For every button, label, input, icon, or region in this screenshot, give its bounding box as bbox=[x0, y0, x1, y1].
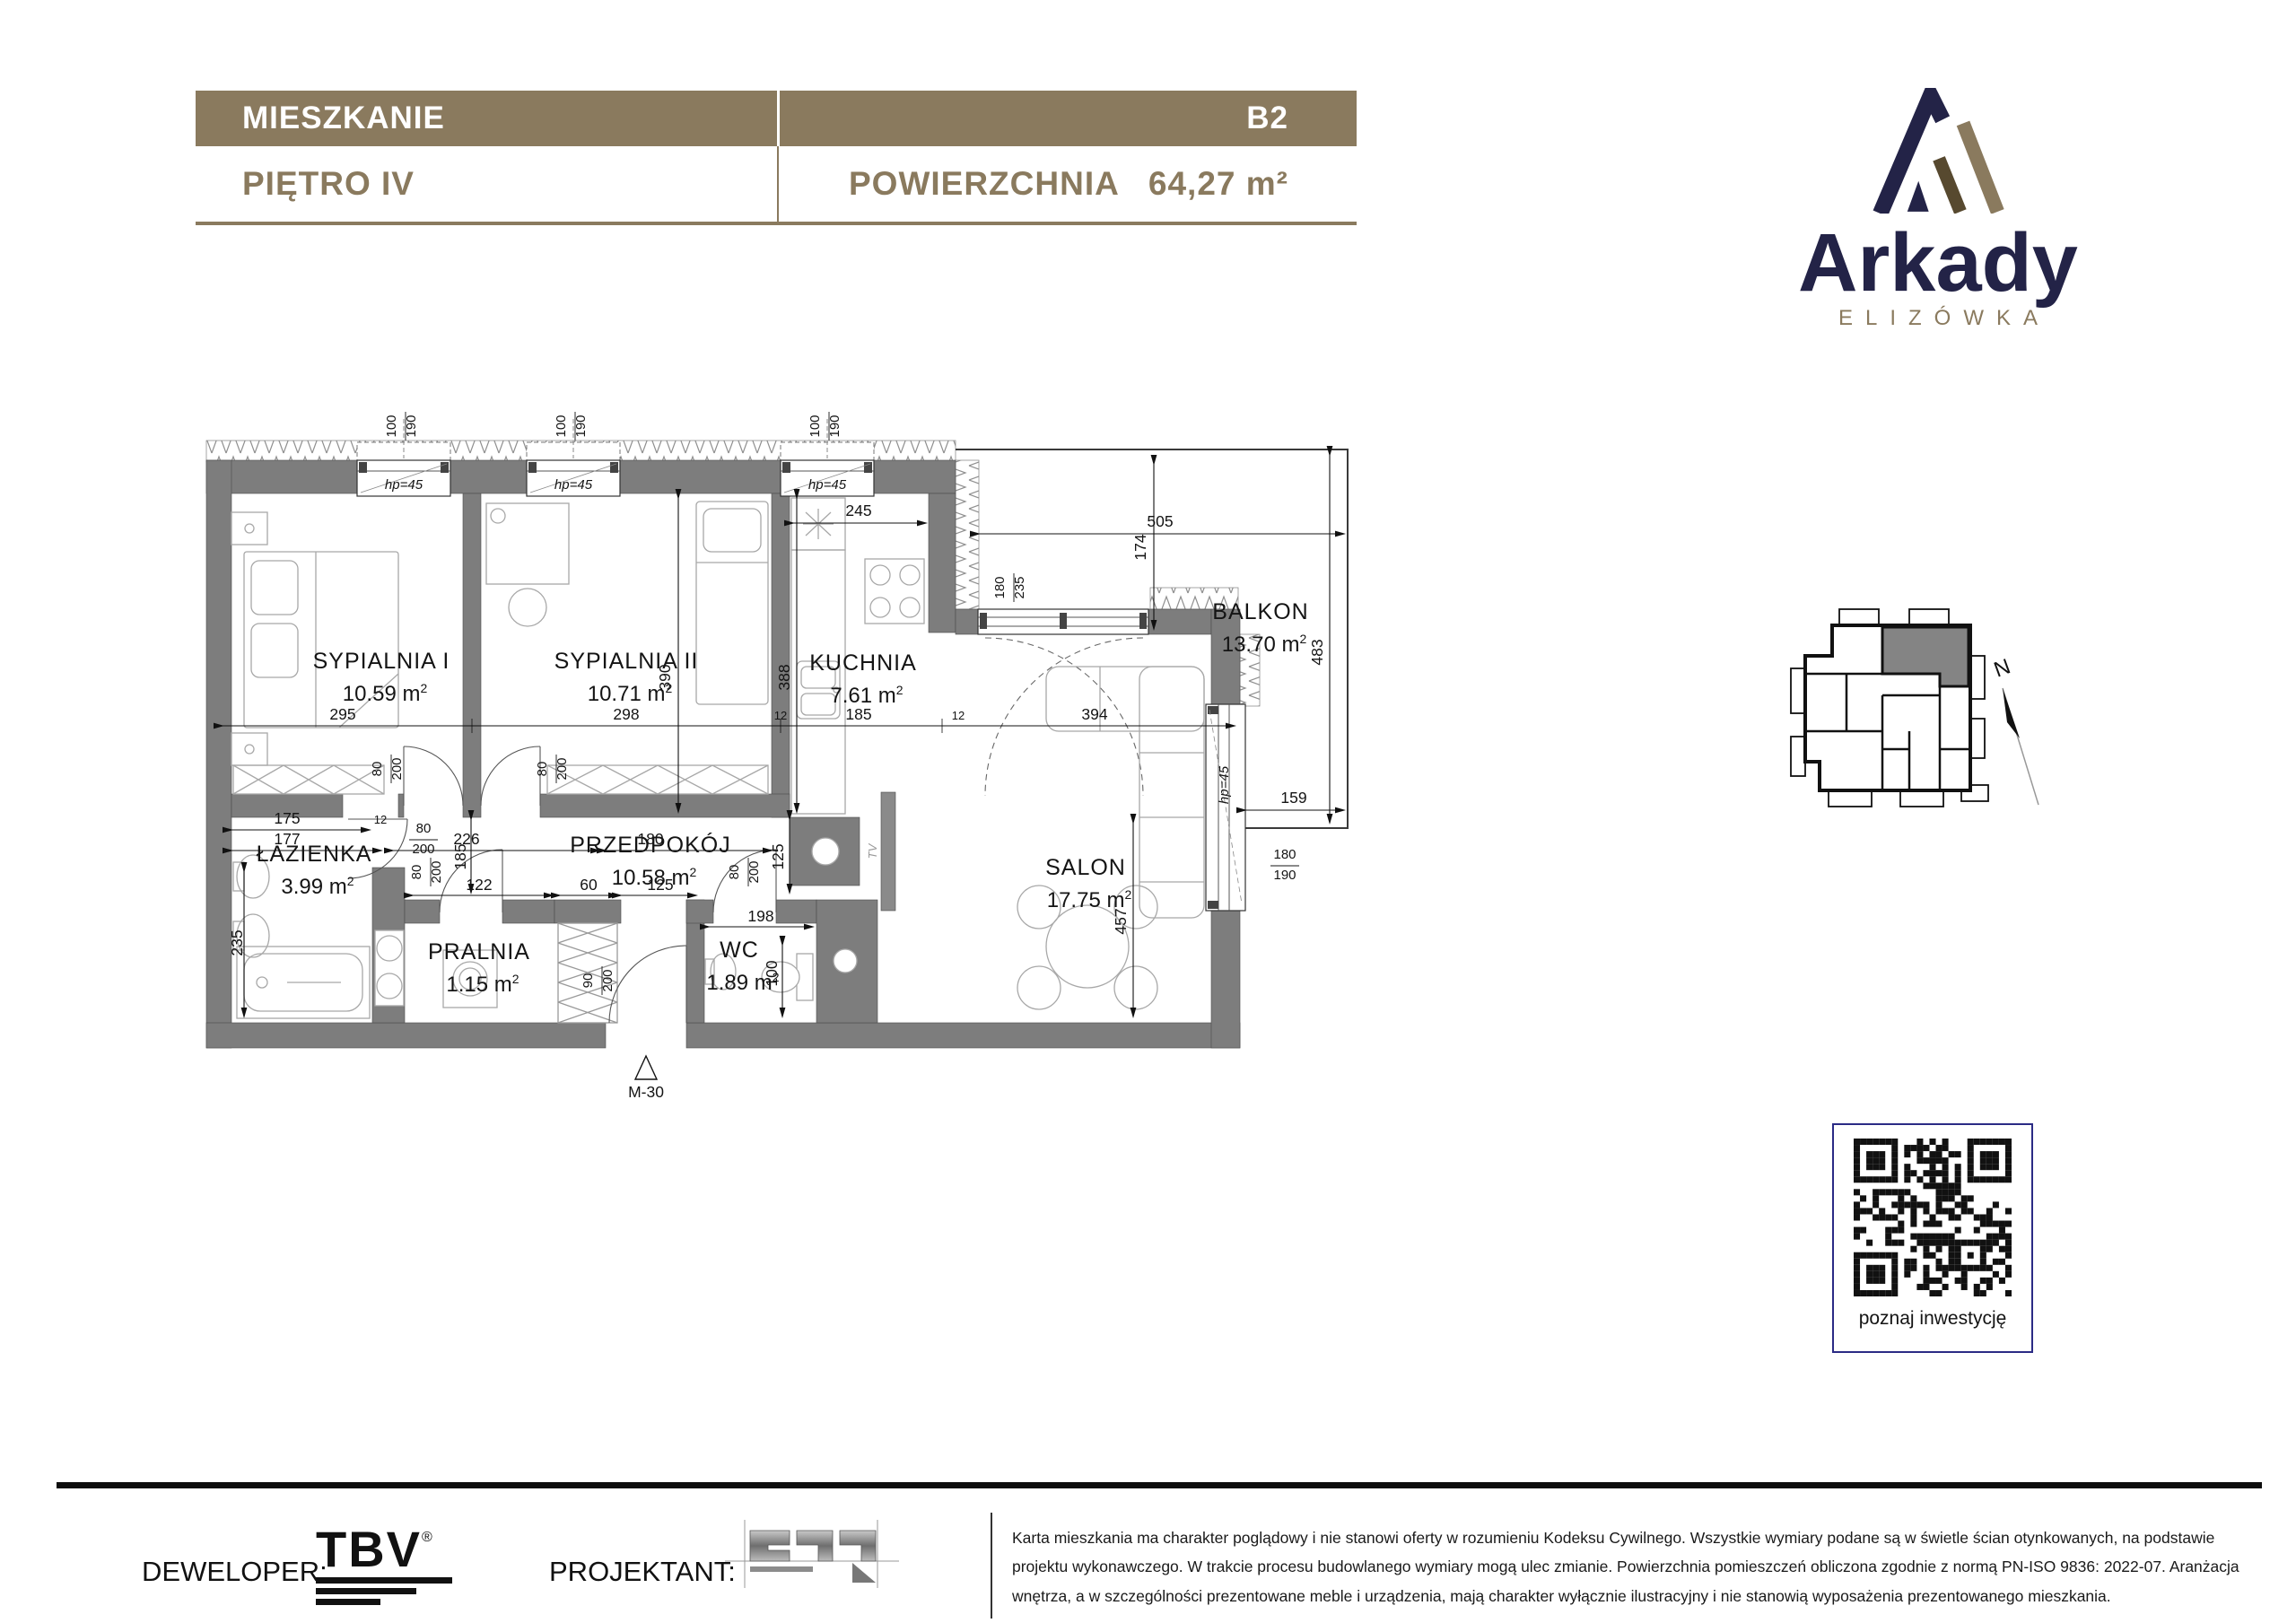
dim-label: TV bbox=[866, 842, 879, 859]
dim-frac: 180 bbox=[992, 576, 1008, 598]
room-area: 10.59 m2 bbox=[343, 681, 428, 706]
dim-label: 457 bbox=[1112, 908, 1130, 934]
dim-label: 174 bbox=[1131, 534, 1149, 560]
developer-logo: TBV® bbox=[316, 1525, 468, 1605]
dim-frac: 100 bbox=[554, 414, 569, 437]
header-row-bottom: PIĘTRO IV POWIERZCHNIA 64,27 m² bbox=[196, 146, 1357, 225]
dim-frac: 190 bbox=[573, 414, 589, 437]
qr-code-icon bbox=[1854, 1139, 2012, 1296]
floor-plan-drawing: SYPIALNIA I10.59 m2SYPIALNIA II10.71 m2K… bbox=[197, 408, 1409, 1117]
room-name: PRALNIA bbox=[428, 939, 530, 964]
header-row-top: MIESZKANIE B2 bbox=[196, 91, 1357, 146]
room-area: 3.99 m2 bbox=[281, 874, 354, 899]
floor-label: PIĘTRO IV bbox=[196, 165, 415, 203]
brand-mark-icon bbox=[1871, 88, 2005, 214]
furniture bbox=[231, 498, 1204, 1023]
tbv-logo-text: TBV® bbox=[316, 1521, 434, 1577]
brand-name: Arkady bbox=[1777, 222, 2100, 304]
room-name: BALKON bbox=[1212, 599, 1308, 624]
floor-plan: SYPIALNIA I10.59 m2SYPIALNIA II10.71 m2K… bbox=[197, 408, 1409, 1121]
cell-floor: PIĘTRO IV bbox=[196, 146, 779, 222]
dim-frac: 200 bbox=[554, 757, 570, 780]
dim-label: hp=45 bbox=[808, 477, 847, 493]
dim-label: 159 bbox=[1280, 789, 1306, 807]
dim-label: 505 bbox=[1147, 512, 1173, 530]
dim-label: 295 bbox=[329, 705, 355, 723]
room-name: KUCHNIA bbox=[809, 650, 917, 676]
dim-frac: 200 bbox=[746, 860, 762, 883]
dim-frac: 200 bbox=[412, 842, 434, 857]
dim-label: hp=45 bbox=[554, 477, 593, 493]
dim-label: 226 bbox=[453, 830, 479, 848]
balcony-door-icon bbox=[978, 609, 1148, 796]
unit-number: B2 bbox=[1246, 100, 1357, 136]
developer-label: DEWELOPER: bbox=[142, 1556, 327, 1588]
dim-label: 122 bbox=[466, 876, 492, 894]
dim-frac: 190 bbox=[404, 414, 419, 437]
dim-frac: 235 bbox=[1012, 576, 1027, 598]
apartment-card-page: MIESZKANIE B2 PIĘTRO IV POWIERZCHNIA 64,… bbox=[0, 0, 2296, 1623]
dim-label: 180 bbox=[637, 830, 663, 848]
room-name: SYPIALNIA I bbox=[313, 649, 450, 674]
dim-label: hp=45 bbox=[385, 477, 423, 493]
dim-label: 12 bbox=[952, 709, 965, 722]
dim-frac: 90 bbox=[581, 973, 596, 989]
dim-frac: 180 bbox=[1273, 847, 1296, 862]
room-area: 13.70 m2 bbox=[1222, 632, 1307, 657]
north-arrow-icon: N bbox=[1991, 654, 2038, 805]
dim-label: hp=45 bbox=[1217, 765, 1232, 804]
dim-label: 177 bbox=[274, 830, 300, 848]
keyplan: N bbox=[1750, 570, 2135, 879]
dim-label: 125 bbox=[769, 843, 787, 869]
dim-frac: 200 bbox=[600, 969, 615, 991]
dim-label: 185 bbox=[845, 705, 871, 723]
cell-apartment: MIESZKANIE bbox=[196, 91, 780, 146]
dim-frac: 80 bbox=[535, 762, 550, 777]
dim-label: 100 bbox=[763, 960, 781, 986]
dim-label: 390 bbox=[656, 664, 674, 690]
tbv-bar bbox=[316, 1577, 452, 1584]
tbv-bar bbox=[316, 1588, 416, 1594]
dim-label: 12 bbox=[374, 813, 387, 826]
dim-frac: 200 bbox=[389, 757, 405, 780]
designer-logo bbox=[718, 1514, 906, 1598]
dim-label: 198 bbox=[747, 907, 773, 925]
cell-area: POWIERZCHNIA 64,27 m² bbox=[779, 146, 1357, 222]
dim-frac: 190 bbox=[827, 414, 842, 437]
designer-label: PROJEKTANT: bbox=[549, 1556, 736, 1588]
brand-subtitle: ELIZÓWKA bbox=[1777, 306, 2100, 331]
qr-caption: poznaj inwestycję bbox=[1859, 1308, 2007, 1330]
keyplan-drawing: N bbox=[1750, 570, 2135, 875]
dim-frac: 80 bbox=[370, 762, 385, 777]
room-name: WC bbox=[720, 938, 759, 963]
area-label: POWIERZCHNIA bbox=[779, 165, 1120, 203]
side-window-icon bbox=[1206, 704, 1245, 911]
dim-label: 175 bbox=[274, 809, 300, 827]
dim-frac: 200 bbox=[429, 860, 444, 883]
dim-label: M-30 bbox=[628, 1083, 664, 1101]
dim-label: 394 bbox=[1081, 705, 1107, 723]
tbv-bar bbox=[316, 1599, 380, 1605]
brand-logo: Arkady ELIZÓWKA bbox=[1777, 88, 2100, 331]
dim-label: 125 bbox=[647, 876, 673, 894]
qr-block: poznaj inwestycję bbox=[1832, 1123, 2033, 1353]
dim-frac: 80 bbox=[409, 865, 424, 880]
north-label: N bbox=[1991, 654, 2014, 682]
dim-label: 60 bbox=[580, 876, 598, 894]
dim-label: 298 bbox=[613, 705, 639, 723]
entry-marker-icon bbox=[635, 1056, 657, 1079]
dim-frac: 190 bbox=[1273, 868, 1296, 883]
window-icon bbox=[357, 419, 874, 496]
cell-unit: B2 bbox=[780, 91, 1357, 146]
legal-disclaimer: Karta mieszkania ma charakter poglądowy … bbox=[1012, 1523, 2268, 1610]
room-area: 7.61 m2 bbox=[830, 683, 903, 708]
apartment-label: MIESZKANIE bbox=[196, 100, 445, 136]
header-table: MIESZKANIE B2 PIĘTRO IV POWIERZCHNIA 64,… bbox=[196, 91, 1357, 225]
dim-label: 483 bbox=[1308, 639, 1326, 665]
dim-label: 388 bbox=[775, 664, 793, 690]
footer-divider bbox=[991, 1513, 992, 1619]
footer-rule bbox=[57, 1482, 2262, 1488]
dim-label: 235 bbox=[228, 929, 246, 955]
room-name: SYPIALNIA II bbox=[554, 649, 699, 674]
dim-label: 245 bbox=[845, 502, 871, 519]
dim-frac: 100 bbox=[808, 414, 823, 437]
dim-frac: 80 bbox=[416, 821, 432, 836]
room-area: 1.15 m2 bbox=[446, 972, 519, 997]
dim-label: 12 bbox=[774, 709, 787, 722]
dim-frac: 100 bbox=[384, 414, 399, 437]
dim-frac: 80 bbox=[727, 865, 742, 880]
area-value: 64,27 m² bbox=[1148, 165, 1357, 203]
room-name: SALON bbox=[1045, 855, 1126, 880]
